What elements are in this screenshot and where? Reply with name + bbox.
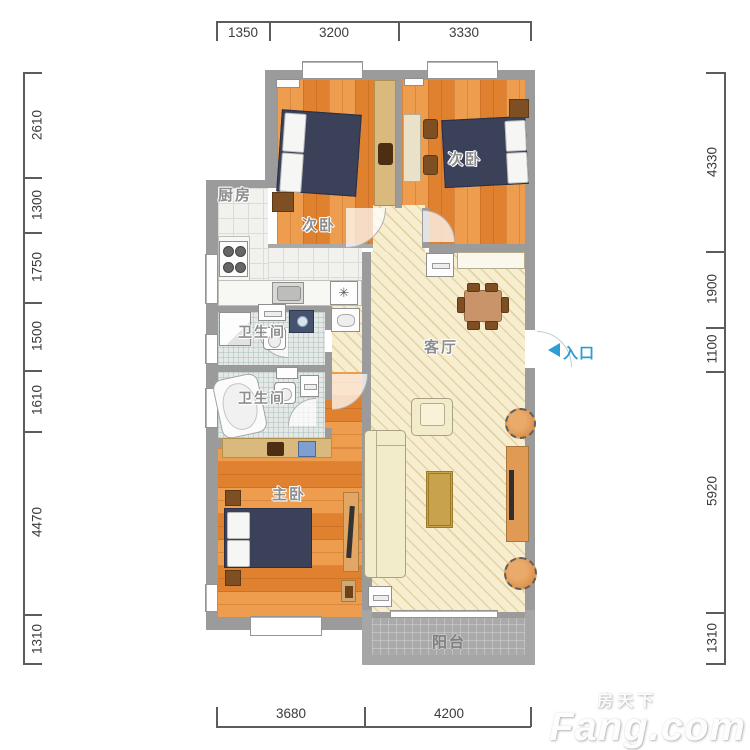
dim-line-right <box>724 72 726 665</box>
wall-bath2-right <box>325 372 332 400</box>
bench <box>457 252 525 269</box>
dim-label-bottom: 3680 <box>276 706 306 721</box>
floorplan-canvas: 1350 3200 3330 3680 4200 2610 1300 1750 … <box>0 0 750 750</box>
dining-chair <box>457 297 465 313</box>
tick <box>706 327 725 329</box>
dining-chair <box>467 283 480 292</box>
nightstand <box>225 570 241 586</box>
hall-washbasin <box>331 308 360 332</box>
dim-label-right: 1310 <box>705 623 720 653</box>
dim-label-top: 3330 <box>449 25 479 40</box>
bath-cabinet <box>300 375 319 397</box>
dim-line-left <box>23 72 25 665</box>
wall-balcony-bottom <box>362 655 535 665</box>
dim-label-left: 1750 <box>30 252 45 282</box>
dim-label-left: 4470 <box>30 507 45 537</box>
nightstand <box>509 99 529 118</box>
gas-symbol: ✳ <box>339 285 350 301</box>
tick <box>216 21 218 41</box>
wall-bedroom-divider <box>395 80 402 208</box>
burner <box>235 246 246 257</box>
dim-label-right: 1100 <box>705 334 720 363</box>
tick <box>706 612 725 614</box>
dim-line-bottom <box>216 726 531 728</box>
sink-basin <box>277 286 301 301</box>
pillow <box>227 512 250 539</box>
tick <box>530 21 532 41</box>
wardrobe-master <box>222 438 332 458</box>
cabinet-detail <box>432 263 450 269</box>
pillow <box>282 113 307 153</box>
desk-chair <box>423 119 438 139</box>
tick <box>706 663 725 665</box>
entrance-opening <box>525 330 535 368</box>
cabinet-detail <box>304 384 316 390</box>
washbasin <box>258 304 286 321</box>
dining-table <box>464 290 502 322</box>
rug <box>426 471 453 528</box>
wall-balcony-stub <box>498 612 525 618</box>
bay-window <box>427 61 498 79</box>
tick <box>23 614 42 616</box>
pillow <box>504 120 527 152</box>
sofa <box>364 430 406 578</box>
nightstand <box>225 490 241 506</box>
dining-chair <box>485 321 498 330</box>
tv-stand <box>506 446 529 542</box>
tick <box>530 707 532 727</box>
tick <box>398 21 400 41</box>
tick <box>706 72 725 74</box>
room-label-living: 客厅 <box>424 336 458 357</box>
tick <box>706 251 725 253</box>
tick <box>23 177 42 179</box>
tick <box>364 707 366 727</box>
dim-label-right: 1900 <box>705 274 720 304</box>
cabinet <box>426 253 454 277</box>
wall-bath-divider <box>206 365 332 372</box>
dim-label-left: 1610 <box>30 385 45 415</box>
room-label-bedroom-top-right: 次卧 <box>448 148 482 169</box>
tv-screen <box>346 506 355 558</box>
wall-balcony-right <box>525 610 535 665</box>
wardrobe <box>374 80 396 206</box>
room-label-kitchen: 厨房 <box>218 184 252 205</box>
dim-label-right: 4330 <box>705 147 720 177</box>
tick <box>23 72 42 74</box>
bed-secondary-left <box>276 109 362 196</box>
tv-panel-master <box>343 492 359 572</box>
dim-label-left: 1310 <box>30 624 45 654</box>
pillow <box>279 152 304 192</box>
dim-label-left: 2610 <box>30 110 45 140</box>
pillow <box>227 540 250 567</box>
tv-screen <box>509 470 514 520</box>
balcony-threshold <box>390 610 498 618</box>
bay-window <box>302 61 363 79</box>
stool-item <box>345 586 353 598</box>
tick <box>706 371 725 373</box>
stove <box>219 241 248 277</box>
tick <box>269 21 271 41</box>
burner <box>223 246 234 257</box>
tick <box>23 232 42 234</box>
armchair-seat <box>420 403 445 426</box>
wall-bath-right <box>325 352 332 372</box>
tick <box>23 370 42 372</box>
dining-chair <box>501 297 509 313</box>
bay-window-master <box>250 616 322 636</box>
desk <box>403 114 421 182</box>
tick <box>216 707 218 727</box>
wardrobe-item <box>267 442 284 456</box>
window-kitchen <box>205 254 218 304</box>
dim-label-left: 1500 <box>30 321 45 351</box>
dining-chair <box>467 321 480 330</box>
tick <box>23 431 42 433</box>
dim-label-top: 1350 <box>228 25 258 40</box>
burner <box>235 262 246 273</box>
tick <box>23 663 42 665</box>
room-label-bath-upper: 卫生间 <box>238 322 286 342</box>
desk-chair <box>423 155 438 175</box>
room-label-master: 主卧 <box>272 483 306 504</box>
dim-line-top <box>216 21 531 23</box>
plant <box>504 557 537 590</box>
basin-bowl <box>337 314 355 327</box>
window-master-left <box>205 584 218 612</box>
unit-detail <box>373 595 388 601</box>
dining-chair <box>485 283 498 292</box>
tick <box>23 302 42 304</box>
dim-label-top: 3200 <box>319 25 349 40</box>
dim-label-bottom: 4200 <box>434 706 464 721</box>
kitchen-sink <box>272 282 304 304</box>
room-label-balcony: 阳台 <box>432 631 466 652</box>
window-bath-upper <box>205 334 218 364</box>
basin-bowl <box>264 311 282 317</box>
nightstand <box>272 192 294 212</box>
floor-unit <box>368 586 392 607</box>
burner <box>223 262 234 273</box>
wall-balcony-stub <box>372 612 390 618</box>
washbasin <box>276 367 298 379</box>
dim-label-left: 1300 <box>30 190 45 220</box>
armchair <box>411 398 453 436</box>
washer-door <box>297 316 308 327</box>
entrance-arrow-icon <box>548 343 560 357</box>
shelf <box>276 79 300 88</box>
room-label-bath-lower: 卫生间 <box>238 388 286 408</box>
entrance-label: 入口 <box>563 342 595 363</box>
watermark-logo: Fang.com <box>549 705 746 750</box>
wardrobe-shirt <box>298 441 316 457</box>
washing-machine <box>289 310 314 333</box>
stool <box>341 580 356 602</box>
wardrobe-item <box>378 143 393 165</box>
gas-box: ✳ <box>330 281 358 305</box>
shelf <box>404 78 424 86</box>
dim-label-right: 5920 <box>705 476 720 506</box>
bed-master <box>224 508 312 568</box>
watermark: 房天下 Fang.com <box>549 687 746 750</box>
wall-bedroom-left <box>265 80 277 188</box>
room-label-bedroom-top-left: 次卧 <box>302 214 336 235</box>
pillow <box>506 152 529 184</box>
plant <box>505 408 536 439</box>
wall-living-left <box>362 252 371 448</box>
